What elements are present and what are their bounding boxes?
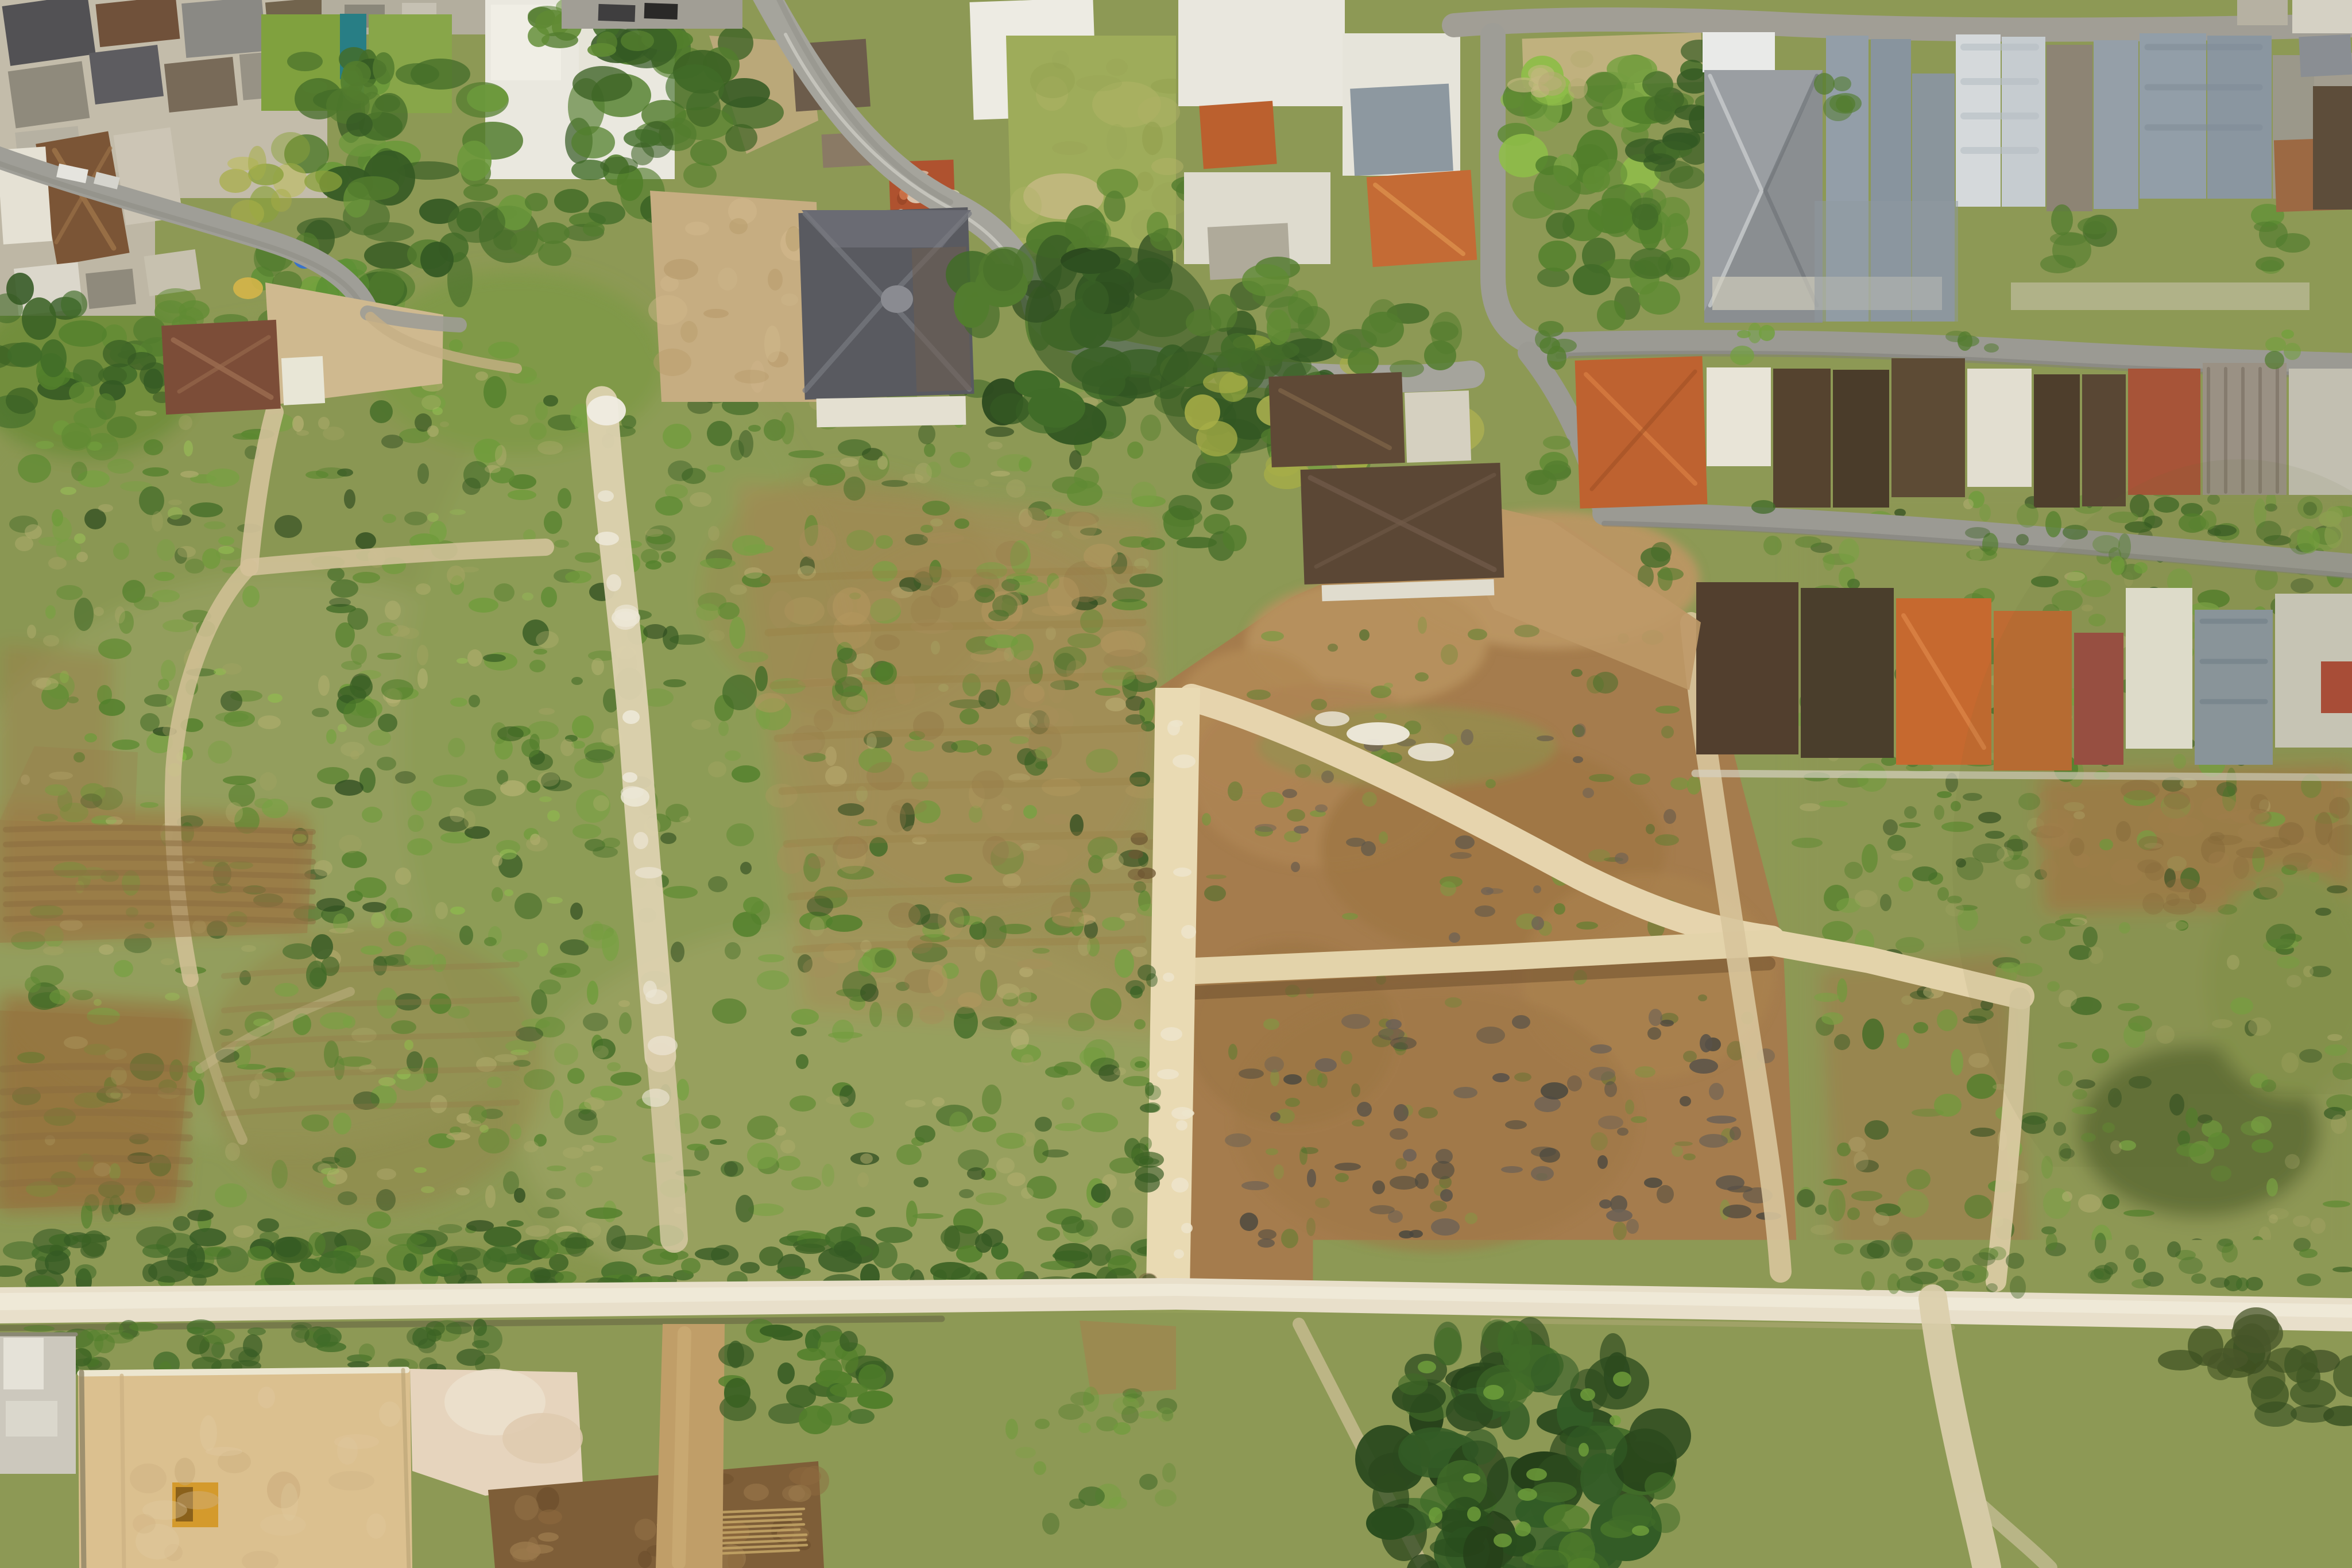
svg-text:BALI HOME IMMO: BALI HOME IMMO	[1847, 1438, 2265, 1488]
svg-text:PROPERTY: PROPERTY	[1997, 1502, 2130, 1519]
